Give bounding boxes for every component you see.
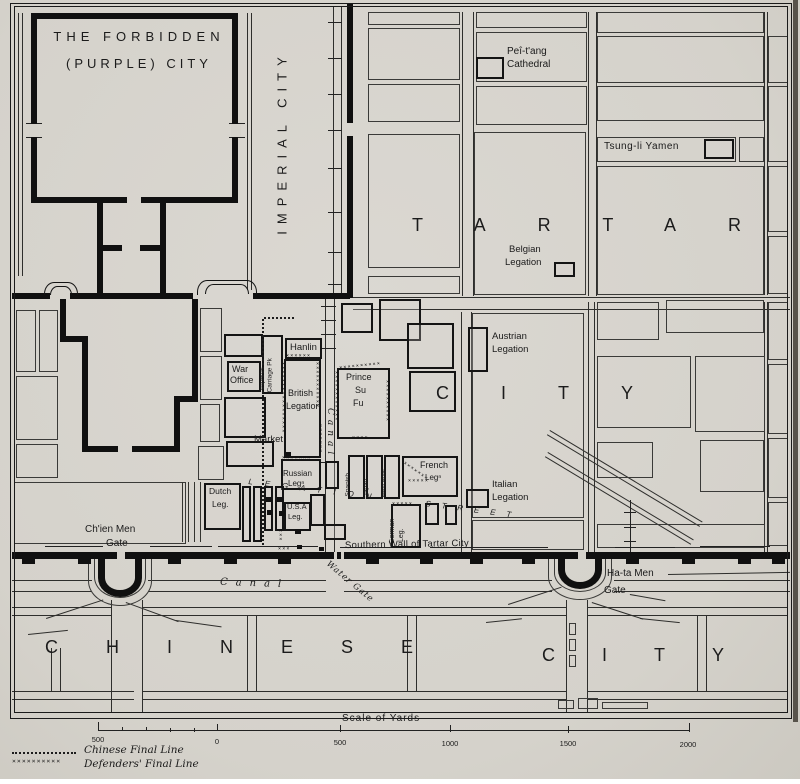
map-line [194, 728, 195, 732]
map-line [98, 730, 690, 731]
peitang-cathedral-label-line2: Cathedral [507, 59, 550, 71]
barricade-mark [266, 497, 272, 502]
barricade-mark [267, 510, 273, 515]
map-line [217, 724, 218, 731]
map-line [170, 728, 171, 732]
tartar-city-label-word2: CITY [436, 383, 685, 404]
peitang-cathedral-label-line1: Peî-t'ang [507, 46, 547, 58]
map-line [340, 725, 341, 732]
defenders-line: ××××××××××××××××× [280, 362, 285, 434]
barricade-mark [279, 511, 285, 516]
italian-legation-label-line1: Italian [492, 480, 517, 491]
map-line [689, 723, 690, 732]
defenders-line: ××× [277, 529, 282, 542]
chinese-line [264, 317, 294, 319]
peking-siege-map: ××××××××××××××××××××××××××××××××××××××××… [0, 0, 800, 784]
austrian-legation-label-line1: Austrian [492, 332, 527, 343]
hata-men-gate-label-line2: Gate [604, 585, 626, 597]
war-office-label-line1: War [232, 364, 248, 374]
usa-legation-label-line2: Leg. [288, 513, 303, 522]
dutch-legation-label-line2: Leg. [212, 500, 229, 510]
map-line [98, 722, 99, 731]
defenders-line: ××××× [392, 502, 413, 507]
hanlin-label: Hanlin [290, 343, 317, 354]
scale-tick-label: 0 [215, 738, 219, 747]
chien-men-gate-label-line1: Ch'ien Men [85, 524, 135, 536]
map-line [146, 727, 147, 731]
french-legation-label-line2: Legⁿ [425, 473, 441, 482]
scale-tick-label: 1000 [442, 740, 459, 749]
map-inner-frame [14, 6, 788, 713]
map-line [122, 727, 123, 731]
defenders-line: ××××××× [282, 456, 311, 461]
british-legation-label-line2: Legation [286, 401, 321, 411]
prince-su-fu-label-line2: Su [355, 385, 366, 395]
russian-legation-label-line1: Russian [283, 469, 312, 478]
chinese-final-line-label: Chinese Final Line [84, 744, 184, 756]
defenders-line: ×××××××××× [384, 380, 389, 422]
defenders-final-line-label: Defenders' Final Line [84, 758, 199, 770]
imperial-carriage-park-label-line1: Imperial [260, 367, 267, 390]
imperial-city-label: IMPERIAL CITY [276, 29, 291, 255]
belgian-legation-label-line1: Belgian [509, 245, 541, 256]
barricade-mark [319, 547, 324, 551]
barricade-mark [277, 497, 283, 502]
scale-tick-label: 2000 [680, 741, 697, 750]
hata-men-gate-label-line1: Ha-ta Men [607, 568, 654, 580]
prince-su-fu-label-line1: Prince [346, 372, 372, 382]
barricade-mark [297, 545, 302, 549]
scale-title: Scale of Yards [342, 713, 420, 725]
barricade-mark [295, 529, 301, 534]
forbidden-city-label-line1: THE FORBIDDEN [40, 30, 238, 45]
chinese-line [262, 319, 264, 545]
tartar-city-label-word1: TARTAR [412, 215, 793, 236]
barricade-mark [286, 452, 291, 456]
defenders-line: ××××××× [317, 424, 322, 453]
chien-men-gate-label-line2: Gate [106, 538, 128, 550]
scan-edge [793, 0, 798, 722]
prince-su-fu-label-line3: Fu [353, 398, 364, 408]
defenders-line: ×××××× [286, 354, 311, 359]
canal-label-chinese-city: Canal [220, 577, 290, 591]
map-line [450, 725, 451, 732]
tsungli-yamen-label: Tsung-li Yamen [604, 141, 679, 153]
forbidden-city-label-line2: (PURPLE) CITY [40, 57, 238, 72]
belgian-legation-label-line2: Legation [505, 258, 541, 269]
chinese-city-label-word2: CITY [542, 645, 771, 666]
war-office-label-line2: Office [230, 375, 253, 385]
imperial-carriage-park-label-line2: Carriage Pk [268, 358, 275, 392]
defenders-final-line-sample: ×××××××××× [12, 758, 61, 765]
scale-tick-label: 500 [334, 739, 347, 748]
usa-legation-label-line1: U.S.A [287, 503, 307, 512]
italian-legation-label-line2: Legation [492, 493, 528, 504]
chinese-city-label-word1: CHINESE [45, 637, 461, 658]
canal-label-vertical: Canal [325, 408, 334, 459]
dutch-legation-label-line1: Dutch [209, 487, 231, 497]
southern-wall-label: Southern Wall of Tartar City [345, 539, 469, 552]
austrian-legation-label-line2: Legation [492, 345, 528, 356]
market-label: Market [254, 435, 283, 446]
scale-tick-label: 1500 [560, 740, 577, 749]
defenders-line: ×××× [352, 436, 369, 441]
defenders-line: ××× [278, 547, 291, 552]
chinese-final-line-sample [12, 752, 76, 754]
map-line [568, 726, 569, 733]
french-legation-label-line1: French [420, 460, 448, 470]
british-legation-label-line1: British [288, 388, 313, 398]
